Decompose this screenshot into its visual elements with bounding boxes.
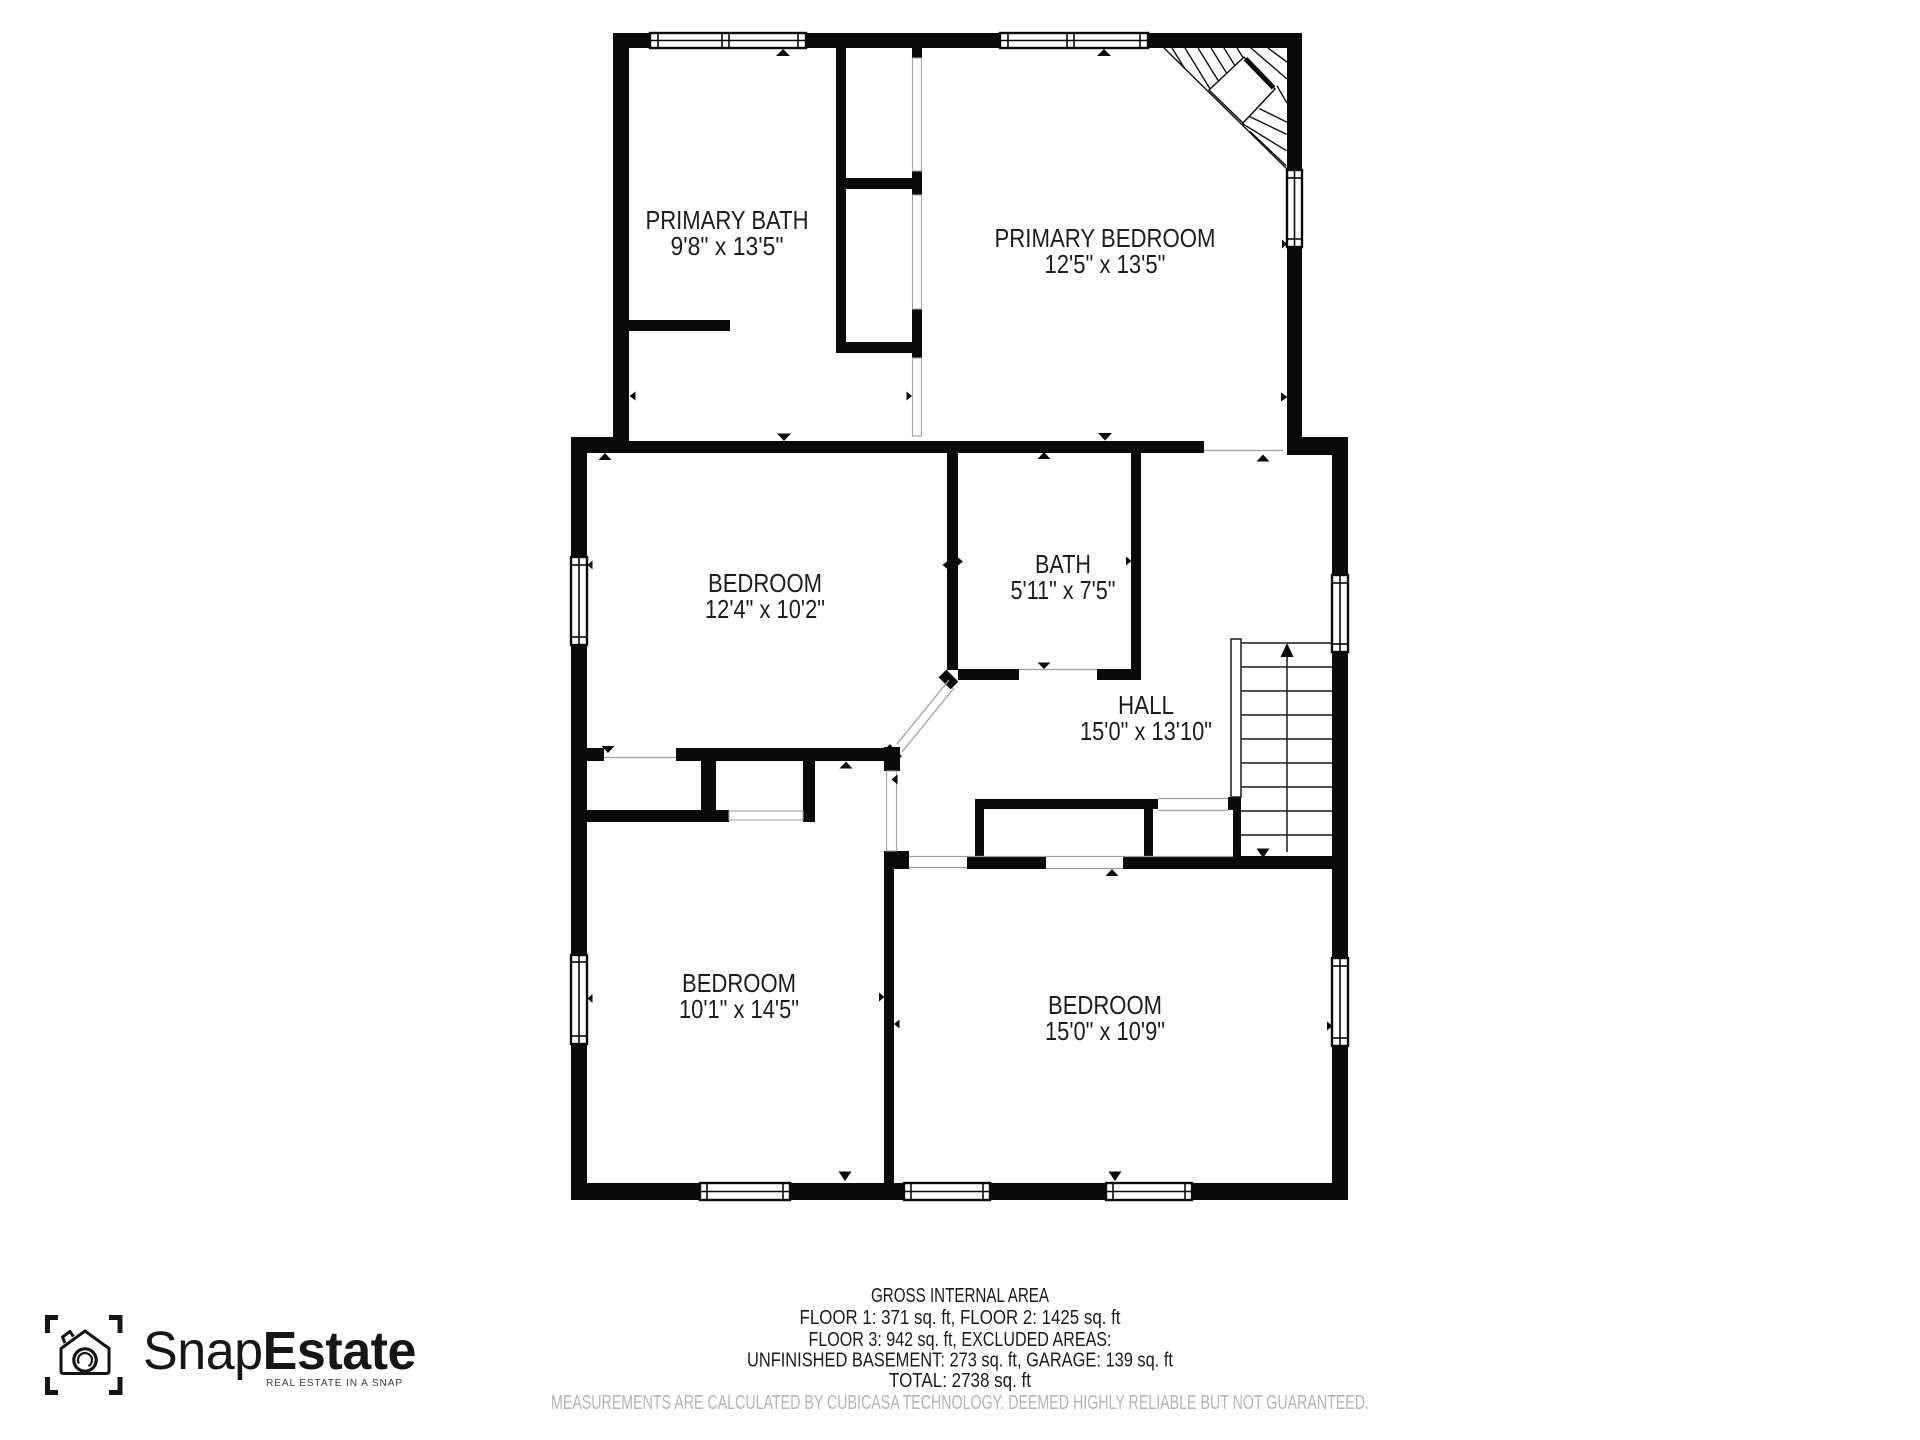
svg-text:12'5" x 13'5": 12'5" x 13'5" [1045,249,1166,279]
svg-text:5'11" x 7'5": 5'11" x 7'5" [1011,575,1116,605]
svg-text:GROSS INTERNAL AREA: GROSS INTERNAL AREA [871,1285,1049,1307]
svg-text:15'0" x 10'9": 15'0" x 10'9" [1045,1016,1165,1046]
svg-text:9'8" x 13'5": 9'8" x 13'5" [671,231,784,261]
svg-text:SnapEstate: SnapEstate [143,1321,416,1381]
svg-text:REAL ESTATE IN A SNAP: REAL ESTATE IN A SNAP [266,1377,403,1389]
svg-text:12'4" x 10'2": 12'4" x 10'2" [705,594,825,624]
svg-text:FLOOR 3: 942 sq. ft, EXCLUDED: FLOOR 3: 942 sq. ft, EXCLUDED AREAS: [809,1329,1112,1351]
svg-text:FLOOR 1: 371 sq. ft, FLOOR 2:: FLOOR 1: 371 sq. ft, FLOOR 2: 1425 sq. f… [800,1307,1121,1329]
svg-text:UNFINISHED BASEMENT: 273 sq. f: UNFINISHED BASEMENT: 273 sq. ft, GARAGE:… [747,1350,1173,1372]
svg-text:15'0" x 13'10": 15'0" x 13'10" [1080,716,1212,746]
svg-text:MEASUREMENTS ARE CALCULATED BY: MEASUREMENTS ARE CALCULATED BY CUBICASA … [551,1392,1369,1414]
svg-text:TOTAL: 2738 sq. ft: TOTAL: 2738 sq. ft [889,1370,1031,1392]
svg-text:10'1" x 14'5": 10'1" x 14'5" [679,994,799,1024]
